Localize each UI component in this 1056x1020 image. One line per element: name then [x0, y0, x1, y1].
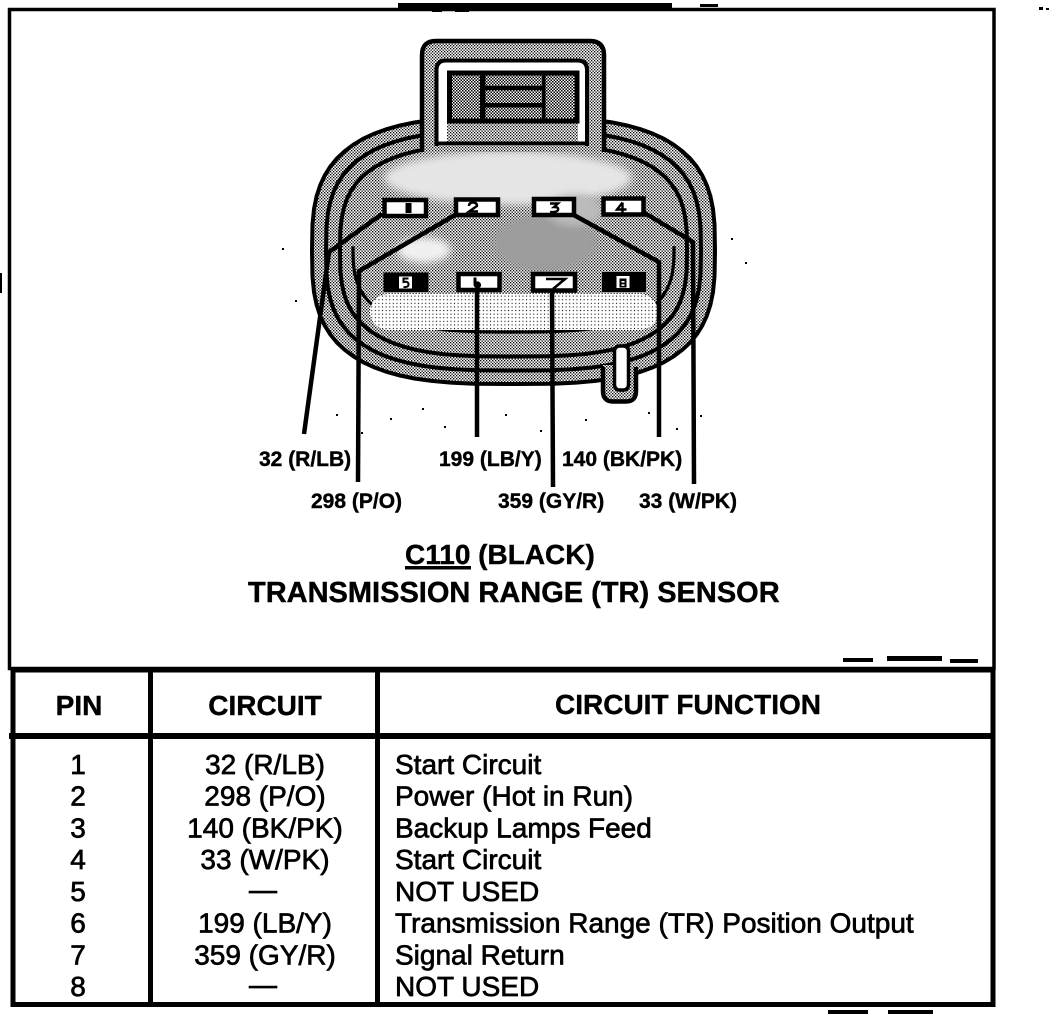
- svg-text:—: —: [249, 969, 277, 1000]
- svg-text:Start Circuit: Start Circuit: [395, 749, 541, 780]
- svg-text:298 (P/O): 298 (P/O): [204, 781, 325, 812]
- svg-text:Transmission Range (TR) Positi: Transmission Range (TR) Position Output: [395, 908, 914, 939]
- svg-text:359 (GY/R): 359 (GY/R): [194, 939, 336, 970]
- svg-text:CIRCUIT: CIRCUIT: [208, 690, 322, 721]
- svg-text:CIRCUIT FUNCTION: CIRCUIT FUNCTION: [555, 689, 821, 720]
- svg-text:140 (BK/PK): 140 (BK/PK): [562, 448, 682, 471]
- svg-text:140 (BK/PK): 140 (BK/PK): [187, 812, 343, 843]
- svg-text:C110 (BLACK): C110 (BLACK): [405, 539, 595, 570]
- svg-text:33 (W/PK): 33 (W/PK): [639, 490, 737, 513]
- svg-text:3: 3: [70, 812, 86, 843]
- svg-text:298 (P/O): 298 (P/O): [311, 490, 402, 513]
- svg-text:33 (W/PK): 33 (W/PK): [200, 844, 329, 875]
- svg-text:Start Circuit: Start Circuit: [395, 844, 541, 875]
- svg-text:PIN: PIN: [56, 690, 103, 721]
- svg-text:Backup Lamps Feed: Backup Lamps Feed: [395, 812, 652, 843]
- svg-text:199 (LB/Y): 199 (LB/Y): [439, 448, 542, 471]
- svg-text:7: 7: [70, 939, 86, 970]
- svg-text:199 (LB/Y): 199 (LB/Y): [198, 908, 332, 939]
- svg-text:Signal Return: Signal Return: [395, 939, 565, 970]
- svg-text:5: 5: [70, 876, 86, 907]
- svg-text:359 (GY/R): 359 (GY/R): [498, 490, 604, 513]
- svg-text:4: 4: [70, 844, 86, 875]
- svg-text:6: 6: [70, 908, 86, 939]
- svg-text:—: —: [249, 874, 277, 905]
- svg-text:2: 2: [70, 781, 86, 812]
- svg-text:32 (R/LB): 32 (R/LB): [205, 749, 325, 780]
- svg-text:NOT USED: NOT USED: [395, 971, 539, 1002]
- svg-text:32 (R/LB): 32 (R/LB): [259, 448, 351, 471]
- svg-text:Power (Hot in Run): Power (Hot in Run): [395, 781, 633, 812]
- svg-text:8: 8: [70, 971, 86, 1002]
- svg-text:NOT USED: NOT USED: [395, 876, 539, 907]
- svg-text:TRANSMISSION RANGE (TR) SENSOR: TRANSMISSION RANGE (TR) SENSOR: [248, 577, 780, 609]
- svg-text:1: 1: [70, 749, 86, 780]
